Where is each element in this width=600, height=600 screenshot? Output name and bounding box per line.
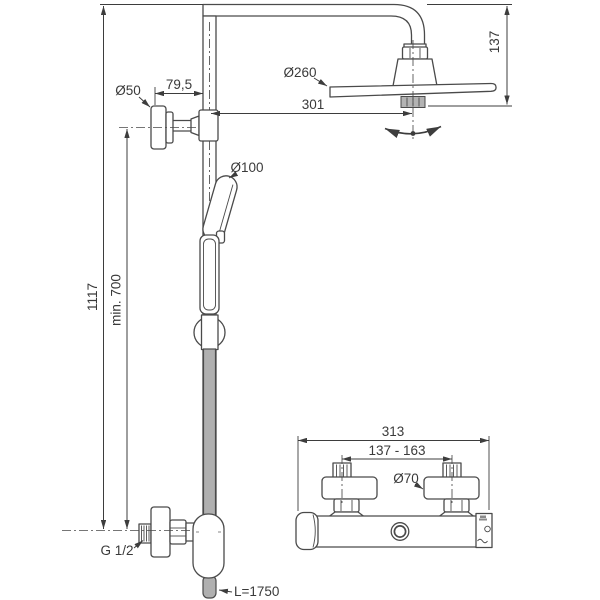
dim-mixer-width: 313: [382, 424, 405, 439]
bracket-collar: [199, 110, 218, 141]
arm-nut: [403, 47, 428, 59]
dim-inlet-spacing: 137 - 163: [368, 443, 425, 458]
dim-head-diameter: Ø260: [283, 65, 316, 80]
inlet-escutcheon: [151, 507, 170, 557]
slider-sleeve: [202, 315, 219, 350]
mixer-escutcheon-left: [322, 477, 377, 499]
dim-hose-length: L=1750: [234, 584, 279, 599]
mixer-detail-view: 313 137 - 163 Ø70: [296, 424, 492, 550]
shower-system-technical-drawing: 1117 min. 700 Ø50 79,5 Ø260 301 137 Ø100…: [0, 0, 600, 600]
hose-tail: [203, 576, 216, 598]
handspray-handle: [200, 235, 219, 314]
temperature-handle: [296, 513, 318, 550]
leader-escutcheon-diameter: [415, 484, 423, 489]
overhead-shower: [330, 40, 496, 142]
dim-inlet-thread: G 1/2: [100, 543, 133, 558]
handshower-icon: [479, 516, 487, 521]
leader-head-diameter: [314, 78, 327, 86]
dim-overall-height: 1117: [85, 283, 100, 311]
technical-drawing-page: 1117 min. 700 Ø50 79,5 Ø260 301 137 Ø100…: [0, 0, 600, 600]
leader-bracket-diameter: [139, 97, 150, 107]
dim-handspray-diameter: Ø100: [230, 160, 263, 175]
dim-bracket-projection: 79,5: [166, 77, 192, 92]
hand-shower: [194, 173, 240, 349]
hose-connector-body: [193, 514, 224, 578]
dim-bracket-diameter: Ø50: [115, 83, 141, 98]
mixer-escutcheon-right: [424, 477, 479, 499]
mixer-nut-right: [444, 499, 469, 512]
mixer-nut-left: [334, 499, 359, 512]
leader-hose-length: [219, 590, 232, 592]
inlet-thread: [139, 524, 151, 543]
dim-escutcheon-diameter: Ø70: [393, 471, 419, 486]
dim-min-height: min. 700: [109, 274, 124, 326]
mixer-inlet-left: [322, 463, 377, 517]
dim-head-drop: 137: [487, 31, 502, 54]
dim-arm-reach: 301: [302, 97, 325, 112]
inlet-nut: [170, 520, 194, 544]
head-cone: [393, 59, 437, 86]
mixer-body: [296, 513, 492, 550]
shower-hose: [204, 349, 216, 520]
mixer-inlet-right: [424, 463, 479, 517]
wall-inlet-connector: [62, 507, 224, 598]
